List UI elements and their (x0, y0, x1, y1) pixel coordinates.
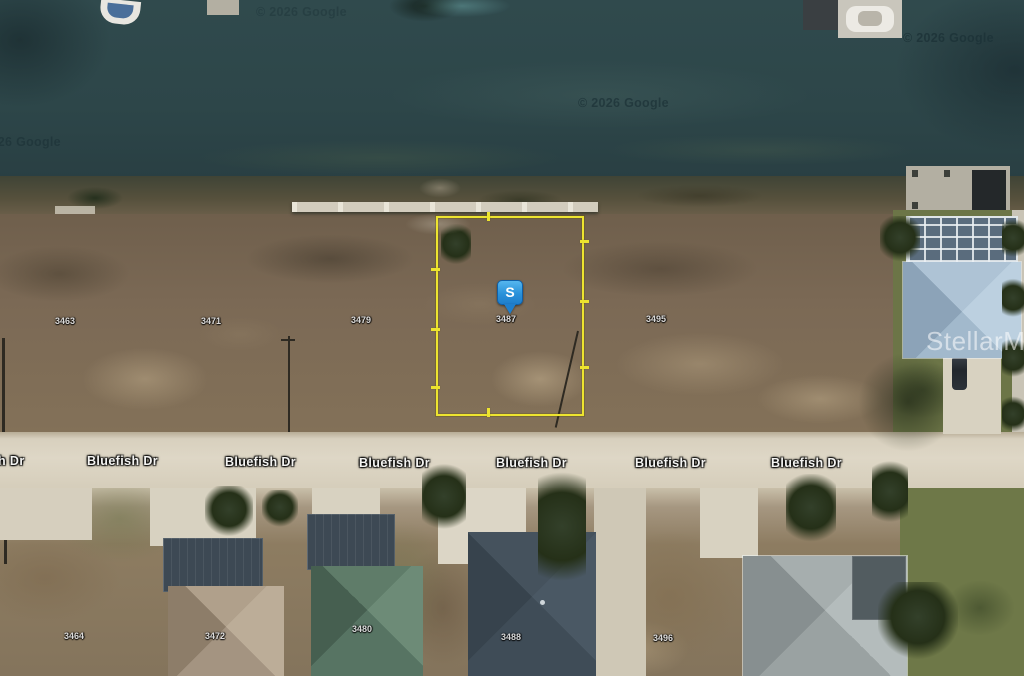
street-label: Bluefish Dr (635, 456, 706, 470)
boat-lift-cover (803, 0, 839, 30)
street-label: Bluefish Dr (359, 456, 430, 470)
google-watermark: © 2026 Google (578, 96, 669, 110)
seawall (292, 202, 598, 212)
lot-number: 3479 (351, 315, 371, 325)
hedge (1002, 218, 1024, 262)
google-watermark: © 2026 Google (903, 31, 994, 45)
listing-marker[interactable]: S (497, 280, 523, 316)
tree (262, 490, 298, 528)
lot-number: 3480 (352, 624, 372, 634)
boat-cockpit (858, 11, 882, 26)
house-roof (168, 586, 284, 676)
palm-tree (422, 464, 466, 536)
survey-tick (487, 408, 490, 417)
utility-pole (2, 338, 5, 432)
car (952, 356, 967, 390)
lot-number: 3472 (205, 631, 225, 641)
satellite-map[interactable]: S 3463 3471 3479 3487 3495 3464 3472 348… (0, 0, 1024, 676)
lot-number: 3463 (55, 316, 75, 326)
palm-tree (538, 468, 586, 598)
house-roof (311, 566, 423, 676)
pavement-pad (0, 488, 92, 540)
street-label: Bluefish Dr (496, 456, 567, 470)
hedge (1002, 278, 1024, 322)
lot-number: 3495 (646, 314, 666, 324)
roof-vent (540, 600, 545, 605)
survey-tick (431, 268, 440, 271)
driveway (700, 488, 758, 558)
survey-tick (580, 366, 589, 369)
seawall (55, 206, 95, 214)
google-watermark: © 2026 Google (0, 135, 61, 149)
garden-bed (878, 582, 958, 660)
pool-enclosure (163, 538, 263, 592)
dock-post (944, 170, 950, 177)
hedge (1002, 396, 1024, 436)
lot-number: 3471 (201, 316, 221, 326)
lot-number: 3487 (496, 314, 516, 324)
survey-tick (580, 300, 589, 303)
dock (207, 0, 239, 15)
lot-number: 3464 (64, 631, 84, 641)
survey-tick (487, 212, 490, 221)
street-label: Bluefish Dr (771, 456, 842, 470)
palm-tree (880, 216, 920, 264)
survey-tick (431, 386, 440, 389)
palm-tree (872, 460, 908, 530)
google-watermark: © 2026 Google (256, 5, 347, 19)
boat-lift-machinery (972, 170, 1006, 210)
tree (205, 486, 253, 538)
marker-tail (504, 304, 516, 314)
lot-number: 3496 (653, 633, 673, 643)
palm-tree (786, 474, 836, 548)
dock-post (912, 202, 918, 209)
marker-label[interactable]: S (497, 280, 523, 305)
driveway (594, 488, 646, 676)
utility-pole-crossarm (281, 339, 295, 341)
street-label: Bluefish Dr (225, 455, 296, 469)
street-label: Bluefish Dr (87, 454, 158, 468)
street-label: h Dr (0, 454, 25, 468)
survey-tick (431, 328, 440, 331)
survey-tick (580, 240, 589, 243)
pool-enclosure (307, 514, 395, 570)
utility-pole (288, 336, 290, 432)
lot-number: 3488 (501, 632, 521, 642)
dock-post (912, 170, 918, 177)
mls-watermark: StellarMLS (926, 326, 1024, 357)
